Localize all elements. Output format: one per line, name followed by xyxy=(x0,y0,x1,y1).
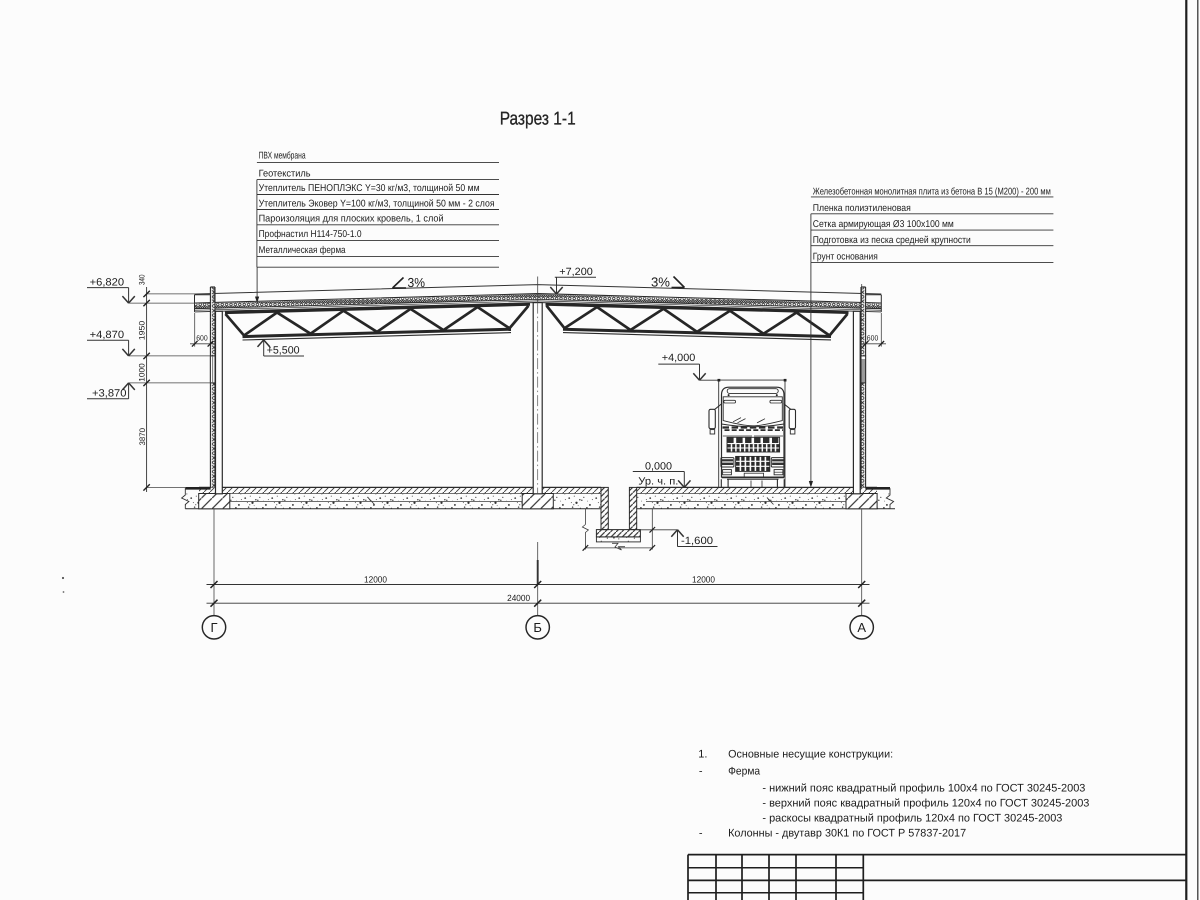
svg-text:24000: 24000 xyxy=(507,593,530,603)
svg-text:Ферма: Ферма xyxy=(728,766,761,778)
svg-text:+5,500: +5,500 xyxy=(267,345,300,357)
svg-text:Разрез 1-1: Разрез 1-1 xyxy=(500,108,576,129)
svg-text:+4,000: +4,000 xyxy=(662,352,696,364)
svg-text:Г: Г xyxy=(210,620,217,635)
svg-text:600: 600 xyxy=(867,334,879,343)
svg-text:-: - xyxy=(699,766,703,778)
svg-text:Сетка армирующая Ø3 100х100 мм: Сетка армирующая Ø3 100х100 мм xyxy=(813,219,954,230)
svg-text:1950: 1950 xyxy=(137,320,146,340)
svg-text:0,000: 0,000 xyxy=(645,460,672,472)
svg-text:Подготовка из песка средней кр: Подготовка из песка средней крупности xyxy=(813,235,971,246)
svg-text:3870: 3870 xyxy=(138,427,147,445)
svg-text:Пароизоляция для плоских крове: Пароизоляция для плоских кровель, 1 слой xyxy=(259,214,444,225)
svg-text:Пленка полиэтиленовая: Пленка полиэтиленовая xyxy=(813,203,911,214)
svg-text:1.: 1. xyxy=(698,749,707,761)
svg-text:+7,200: +7,200 xyxy=(559,266,593,278)
svg-text:-: - xyxy=(699,828,703,840)
svg-text:Утеплитель ПЕНОПЛЭКС Y=30 кг/м: Утеплитель ПЕНОПЛЭКС Y=30 кг/м3, толщино… xyxy=(259,183,480,194)
svg-text:Утеплитель Эковер Y=100 кг/м3,: Утеплитель Эковер Y=100 кг/м3, толщиной … xyxy=(259,198,495,209)
svg-text:+4,870: +4,870 xyxy=(90,329,125,341)
svg-text:Колонны - двутавр 30К1 по ГОСТ: Колонны - двутавр 30К1 по ГОСТ Р 57837-2… xyxy=(728,828,966,840)
svg-text:+6,820: +6,820 xyxy=(90,276,125,288)
svg-text:3%: 3% xyxy=(651,275,670,290)
svg-text:Основные несущие конструкции:: Основные несущие конструкции: xyxy=(728,749,893,761)
svg-text:Металлическая ферма: Металлическая ферма xyxy=(259,245,346,256)
svg-text:340: 340 xyxy=(137,274,146,285)
svg-text:3%: 3% xyxy=(408,275,426,290)
svg-text:ПВХ мембрана: ПВХ мембрана xyxy=(259,151,306,162)
svg-text:12000: 12000 xyxy=(364,574,387,584)
svg-text:А: А xyxy=(857,620,866,635)
svg-text:1000: 1000 xyxy=(137,363,146,382)
svg-text:- раскосы квадратный профиль 1: - раскосы квадратный профиль 120х4 по ГО… xyxy=(762,813,1062,825)
svg-text:Профнастил Н114-750-1.0: Профнастил Н114-750-1.0 xyxy=(259,229,362,240)
svg-text:Геотекстиль: Геотекстиль xyxy=(259,168,311,179)
svg-text:Б: Б xyxy=(533,620,542,635)
svg-text:- нижний пояс квадратный профи: - нижний пояс квадратный профиль 100х4 п… xyxy=(762,783,1085,795)
svg-text:Железобетонная монолитная плит: Железобетонная монолитная плита из бетон… xyxy=(813,186,1051,197)
svg-text:12000: 12000 xyxy=(692,574,715,584)
svg-text:-1,600: -1,600 xyxy=(681,535,713,547)
svg-text:600: 600 xyxy=(196,334,208,343)
svg-text:Грунт основания: Грунт основания xyxy=(813,251,878,262)
svg-text:Ур. ч. п.: Ур. ч. п. xyxy=(638,475,678,487)
svg-text:- верхний пояс квадратный проф: - верхний пояс квадратный профиль 120х4 … xyxy=(762,798,1089,810)
svg-text:+3,870: +3,870 xyxy=(92,388,127,400)
